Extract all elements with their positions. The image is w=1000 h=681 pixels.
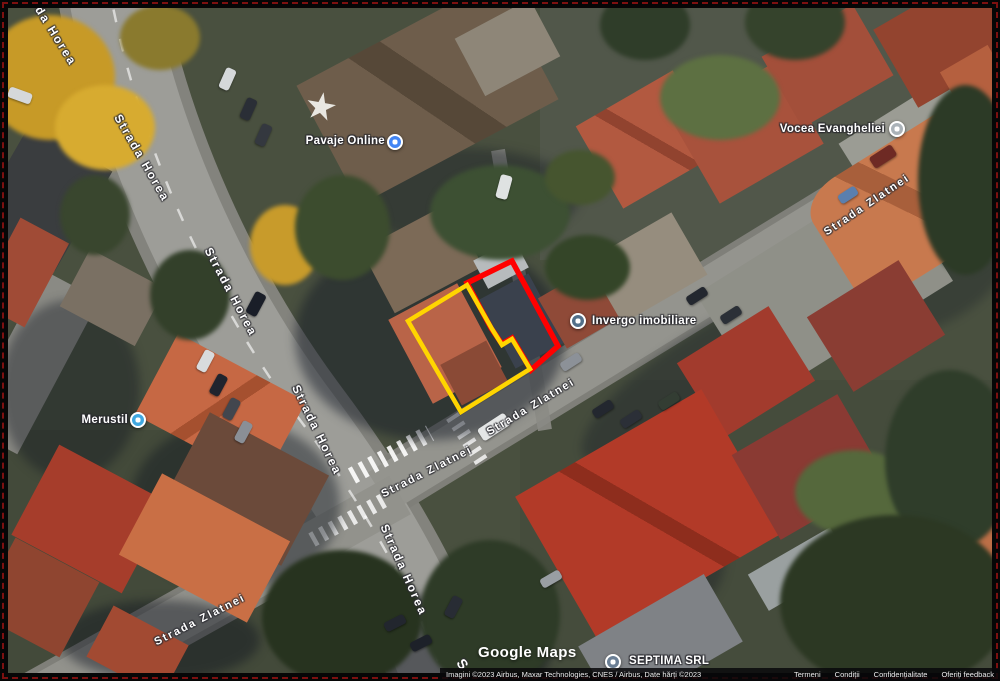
poi-marker-pavaje[interactable] bbox=[387, 134, 403, 150]
poi-marker-vocea[interactable] bbox=[889, 121, 905, 137]
property-outline bbox=[0, 0, 1000, 681]
poi-label-invergo[interactable]: Invergo imobiliare bbox=[592, 315, 696, 327]
poi-label-pavaje[interactable]: Pavaje Online bbox=[306, 135, 385, 147]
poi-label-merustil[interactable]: Merustil bbox=[82, 414, 129, 426]
attribution-bar: Imagini ©2023 Airbus, Maxar Technologies… bbox=[440, 668, 1000, 681]
poi-marker-merustil[interactable] bbox=[130, 412, 146, 428]
satellite-map: da Horea Strada Horea Strada Horea Strad… bbox=[0, 0, 1000, 681]
poi-marker-invergo[interactable] bbox=[570, 313, 586, 329]
feedback-link[interactable]: Oferiți feedback bbox=[941, 670, 994, 679]
google-maps-watermark[interactable]: Google Maps bbox=[478, 644, 577, 661]
outline-red bbox=[467, 261, 558, 370]
terms-link[interactable]: Termeni bbox=[794, 670, 821, 679]
conditions-link[interactable]: Condiții bbox=[835, 670, 860, 679]
privacy-link[interactable]: Confidențialitate bbox=[874, 670, 928, 679]
outline-yellow bbox=[408, 285, 530, 412]
attribution-imagery: Imagini ©2023 Airbus, Maxar Technologies… bbox=[446, 670, 701, 679]
poi-label-vocea[interactable]: Vocea Evangheliei bbox=[780, 123, 885, 135]
poi-label-septima[interactable]: SEPTIMA SRL bbox=[629, 655, 709, 667]
